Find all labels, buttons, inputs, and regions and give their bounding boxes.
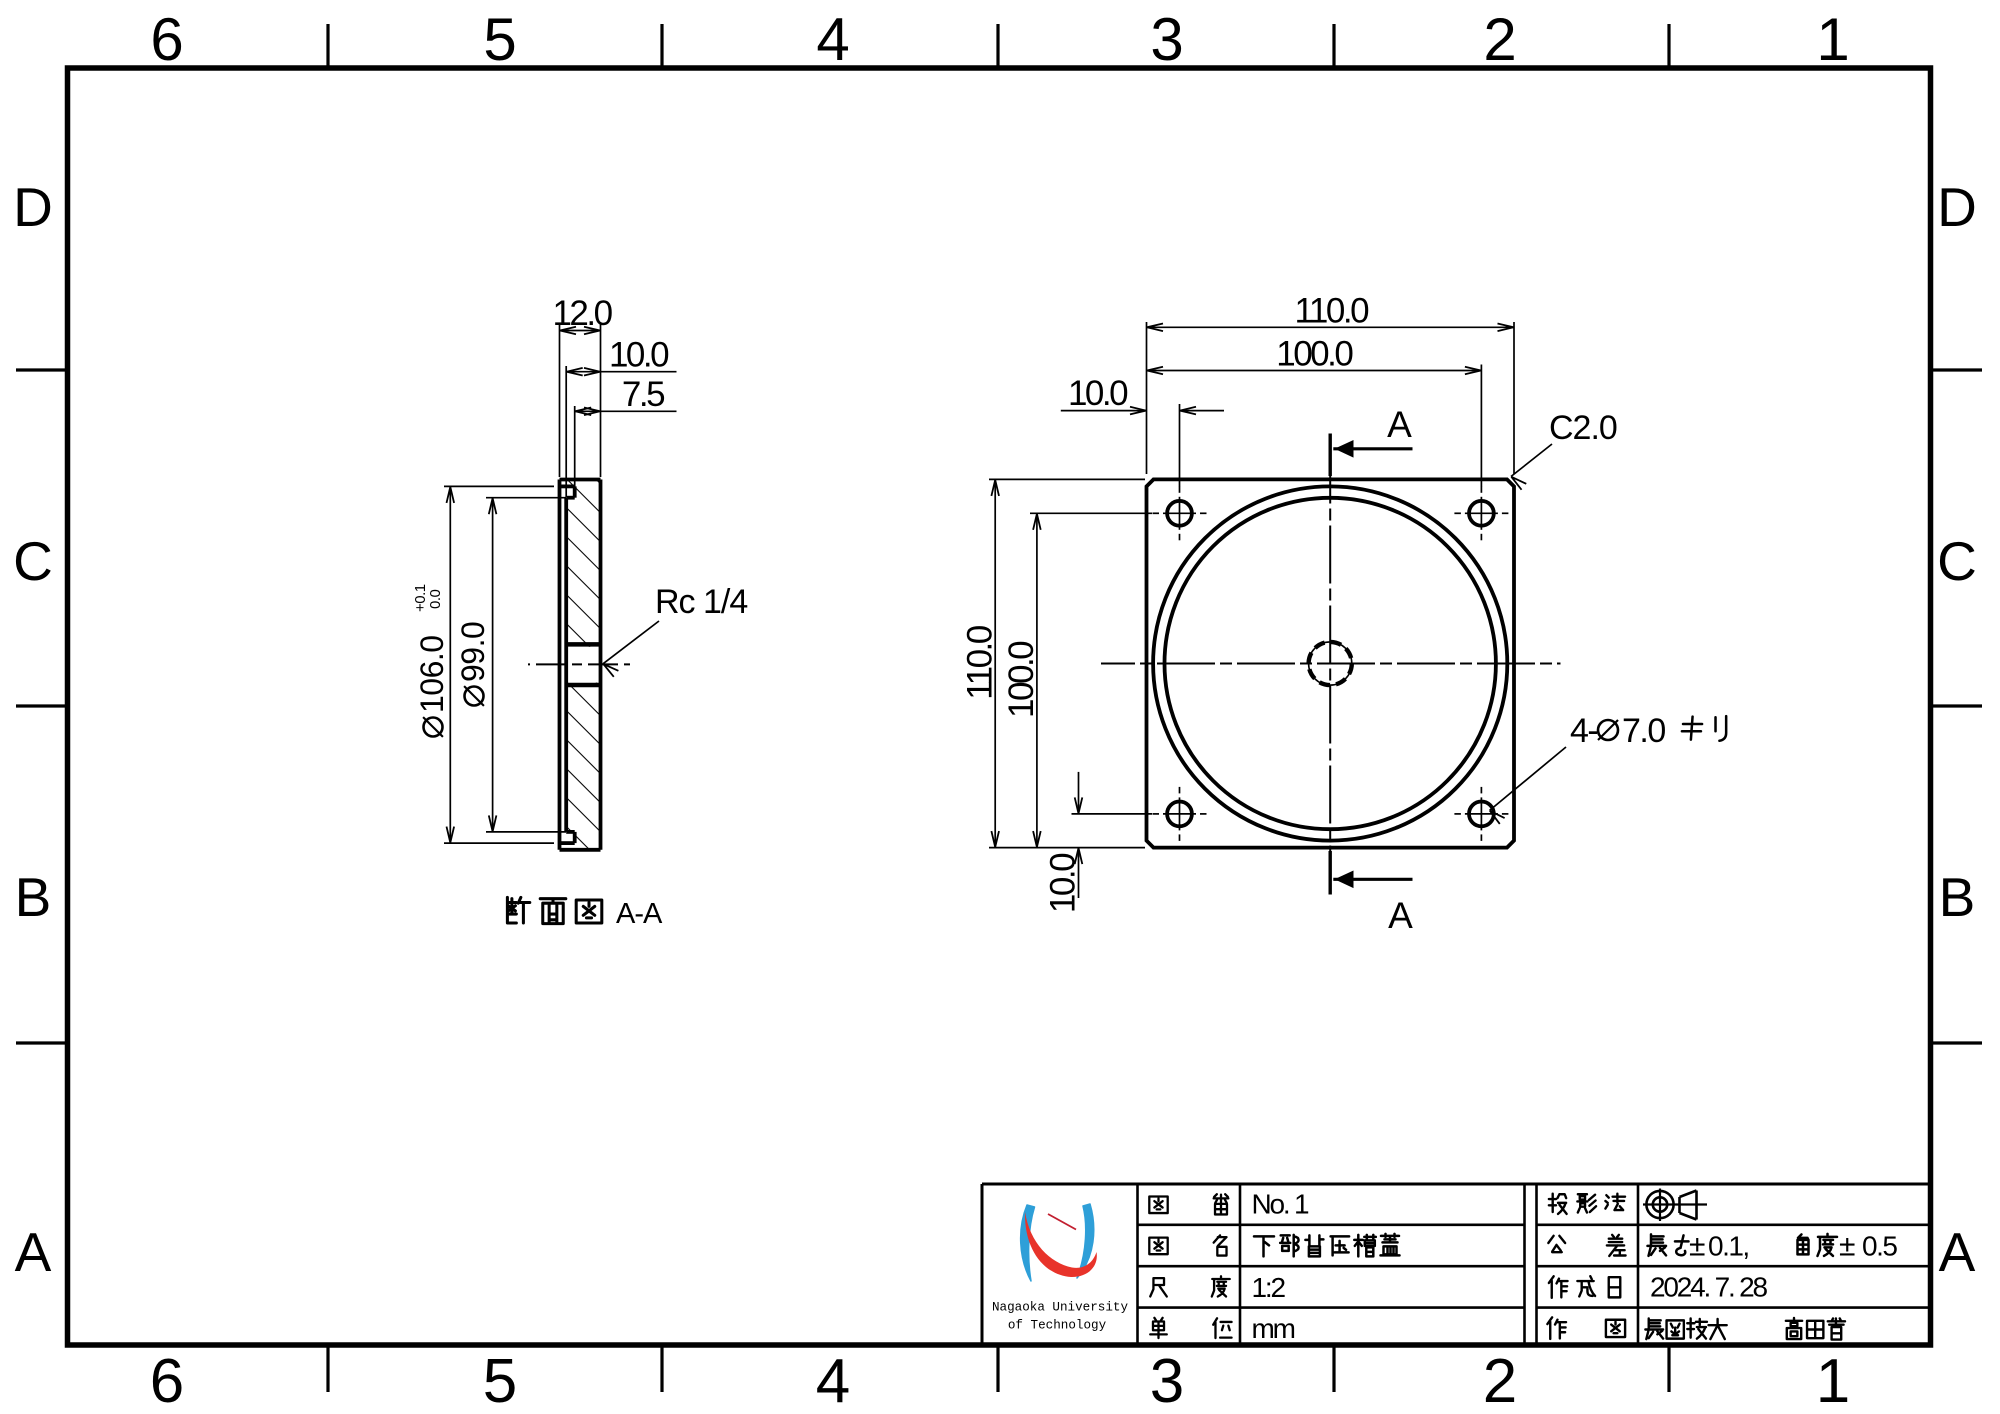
svg-text:A: A	[15, 1221, 52, 1283]
svg-text:5: 5	[483, 1347, 517, 1414]
svg-text:D: D	[13, 176, 53, 238]
svg-text:A: A	[1387, 404, 1412, 445]
svg-text:4-: 4-	[1570, 712, 1597, 750]
svg-text:D: D	[1937, 176, 1977, 238]
svg-text:Rc 1/4: Rc 1/4	[655, 583, 747, 621]
svg-text:±: ±	[1689, 1230, 1705, 1263]
svg-text:No. 1: No. 1	[1252, 1189, 1310, 1220]
svg-text:3: 3	[1150, 6, 1183, 73]
svg-text:110.0: 110.0	[1295, 291, 1370, 330]
svg-text:0.1,: 0.1,	[1708, 1231, 1749, 1262]
svg-text:±: ±	[1839, 1230, 1855, 1263]
svg-text:2: 2	[1483, 1347, 1517, 1414]
svg-text:C: C	[13, 530, 53, 592]
svg-text:C: C	[1937, 530, 1977, 592]
svg-text:12.0: 12.0	[552, 294, 612, 333]
svg-text:99.0: 99.0	[455, 622, 491, 682]
svg-text:4: 4	[816, 1347, 850, 1414]
svg-text:A: A	[1939, 1221, 1976, 1283]
svg-text:A: A	[1388, 895, 1413, 936]
svg-text:3: 3	[1150, 1347, 1184, 1414]
svg-text:100.0: 100.0	[1002, 641, 1041, 718]
svg-text:0.0: 0.0	[427, 589, 444, 609]
svg-text:10.0: 10.0	[1068, 374, 1128, 413]
svg-text:6: 6	[150, 1347, 184, 1414]
svg-text:A-A: A-A	[616, 898, 663, 930]
svg-text:2: 2	[1483, 6, 1516, 73]
svg-text:7.5: 7.5	[622, 375, 664, 414]
svg-text:C2.0: C2.0	[1549, 409, 1617, 447]
svg-text:110.0: 110.0	[961, 625, 1000, 700]
svg-text:1:2: 1:2	[1252, 1272, 1286, 1303]
svg-text:100.0: 100.0	[1276, 335, 1353, 374]
svg-text:7.0: 7.0	[1622, 712, 1665, 750]
svg-text:1: 1	[1816, 6, 1849, 73]
svg-text:mm: mm	[1252, 1313, 1295, 1344]
svg-text:0.5: 0.5	[1862, 1231, 1897, 1262]
svg-text:B: B	[15, 866, 52, 928]
svg-text:4: 4	[816, 6, 849, 73]
svg-text:6: 6	[150, 6, 183, 73]
svg-text:B: B	[1939, 866, 1976, 928]
svg-text:Nagaoka University: Nagaoka University	[992, 1301, 1128, 1315]
svg-text:5: 5	[483, 6, 516, 73]
svg-text:10.0: 10.0	[1044, 853, 1083, 913]
svg-text:10.0: 10.0	[609, 336, 669, 375]
svg-text:106.0: 106.0	[414, 635, 450, 713]
svg-text:1: 1	[1816, 1347, 1850, 1414]
svg-text:of Technology: of Technology	[1008, 1319, 1107, 1333]
svg-text:2024. 7. 28: 2024. 7. 28	[1650, 1272, 1768, 1303]
